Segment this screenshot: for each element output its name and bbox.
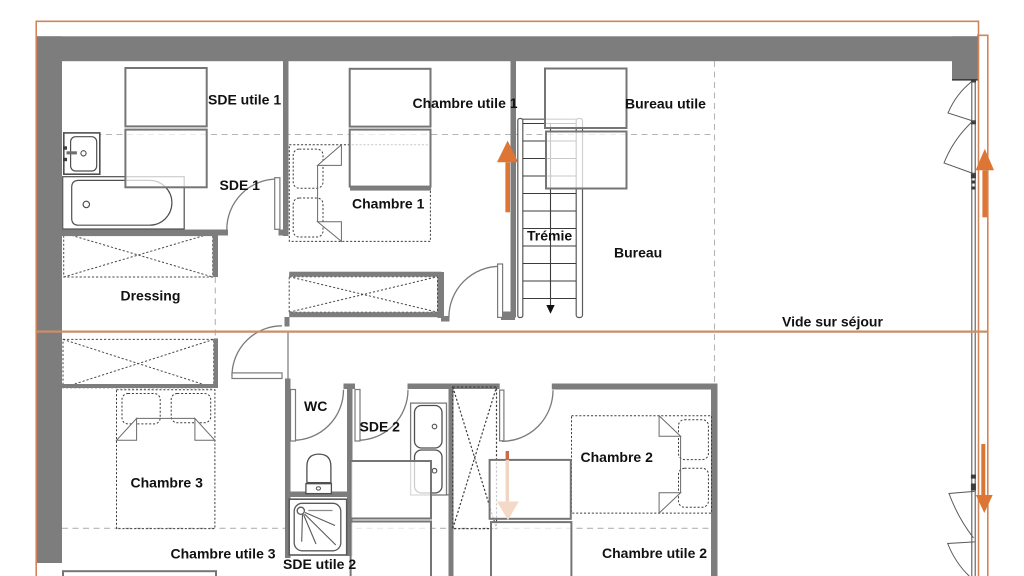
- svg-text:Chambre utile 2: Chambre utile 2: [602, 545, 707, 561]
- svg-text:Chambre utile 1: Chambre utile 1: [413, 95, 518, 111]
- svg-text:SDE 1: SDE 1: [220, 177, 261, 193]
- svg-text:WC: WC: [304, 398, 327, 414]
- svg-text:Chambre 3: Chambre 3: [131, 475, 204, 491]
- svg-text:SDE 2: SDE 2: [360, 419, 401, 435]
- svg-text:Trémie: Trémie: [527, 228, 572, 244]
- svg-text:SDE utile 2: SDE utile 2: [283, 556, 356, 572]
- svg-text:Bureau utile: Bureau utile: [625, 96, 706, 112]
- svg-text:Chambre 1: Chambre 1: [352, 196, 425, 212]
- svg-text:Chambre utile 3: Chambre utile 3: [171, 546, 276, 562]
- svg-text:Bureau: Bureau: [614, 245, 662, 261]
- svg-text:Chambre 2: Chambre 2: [581, 449, 654, 465]
- svg-text:Dressing: Dressing: [121, 288, 181, 304]
- svg-text:Vide sur séjour: Vide sur séjour: [782, 314, 883, 330]
- svg-text:SDE utile 1: SDE utile 1: [208, 92, 281, 108]
